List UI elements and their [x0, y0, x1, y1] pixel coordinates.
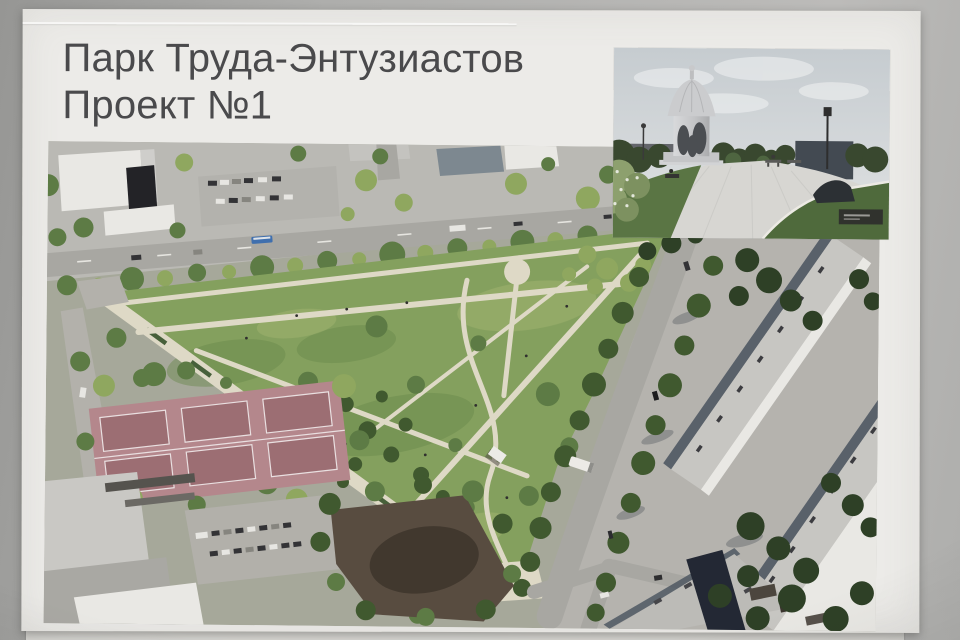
poster-crease [23, 22, 517, 25]
white-truck [449, 225, 465, 232]
park-project-poster: Парк Труда-Энтузиастов Проект №1 [21, 9, 920, 633]
north-plaza [504, 259, 530, 285]
building-slate-roof [436, 145, 504, 177]
inset-monument-render [613, 48, 890, 240]
watermark-badge [839, 209, 883, 224]
photo-of-poster: Парк Труда-Энтузиастов Проект №1 [0, 0, 960, 640]
poster-title-line2: Проект №1 [62, 82, 524, 130]
poster-title-line1: Парк Труда-Энтузиастов [62, 35, 524, 83]
poster-title: Парк Труда-Энтузиастов Проект №1 [62, 35, 524, 130]
inset-svg [613, 48, 890, 240]
